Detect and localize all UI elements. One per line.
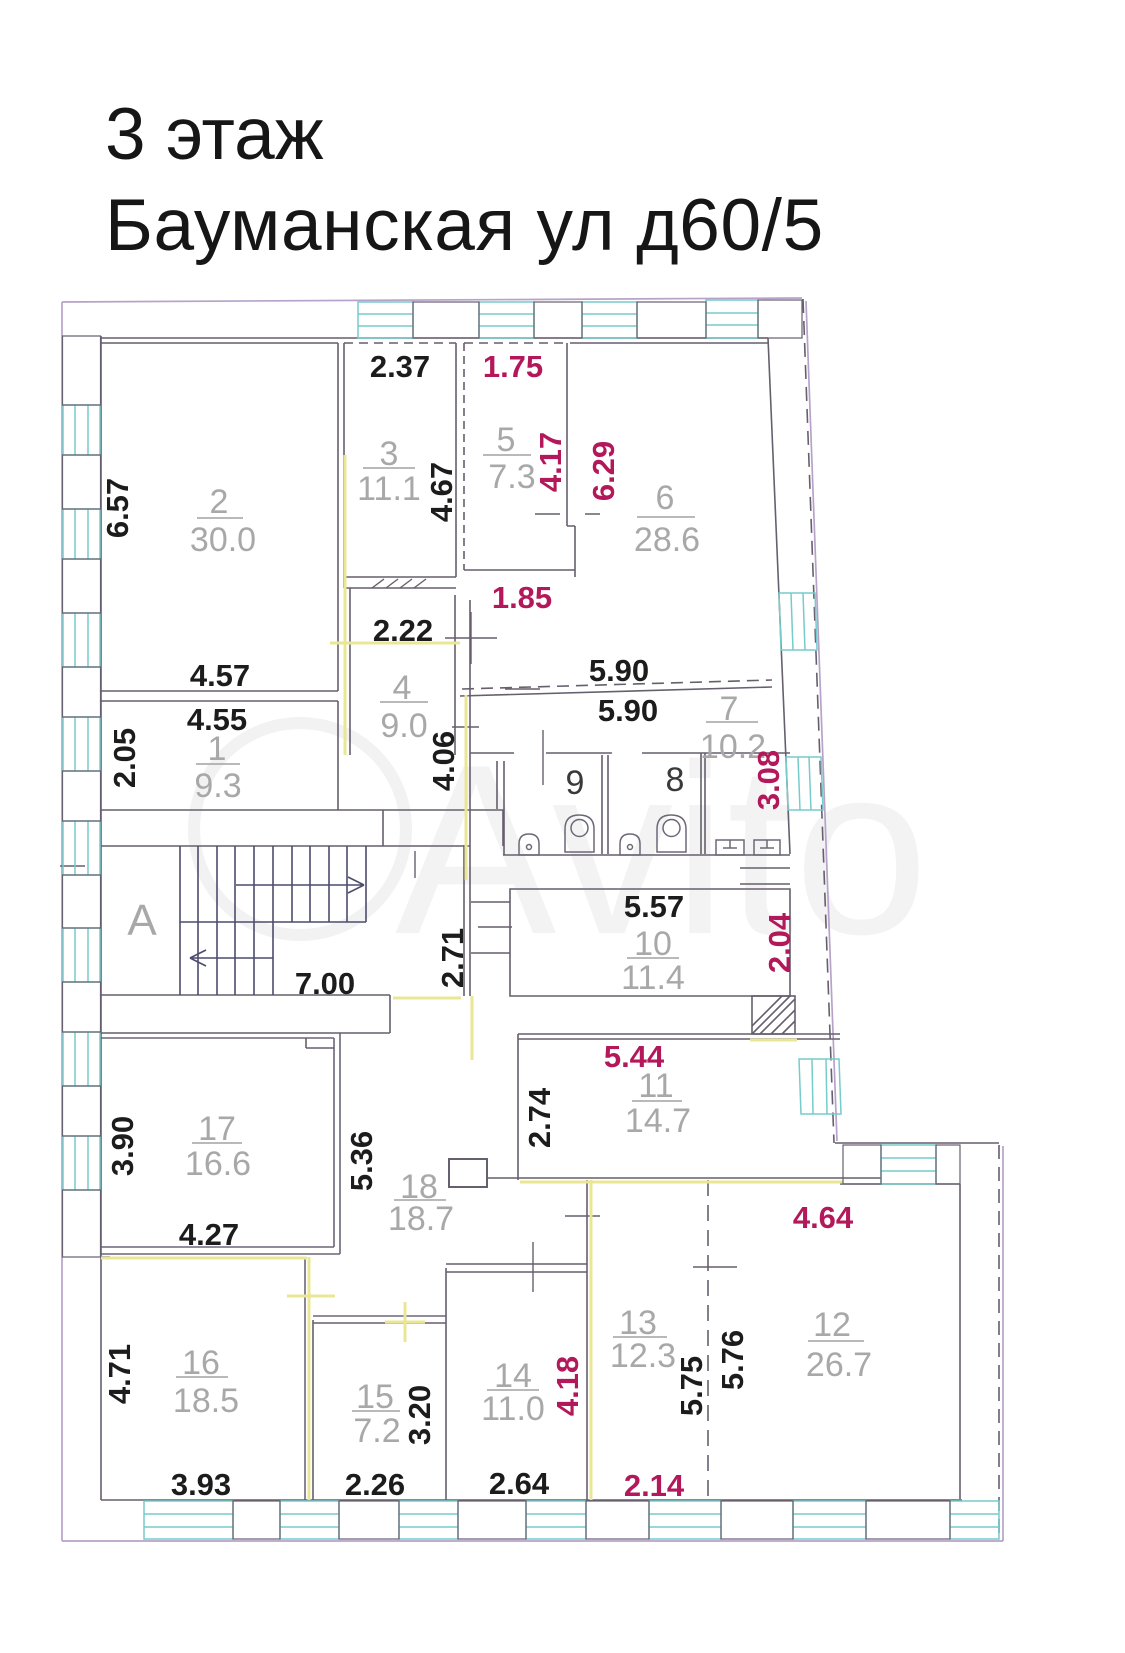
svg-text:7.00: 7.00 — [295, 966, 355, 1001]
svg-text:8: 8 — [666, 761, 685, 799]
svg-text:12: 12 — [813, 1306, 851, 1344]
svg-text:26.7: 26.7 — [806, 1346, 872, 1384]
svg-text:5.90: 5.90 — [598, 693, 658, 728]
svg-text:9.3: 9.3 — [194, 767, 241, 805]
svg-text:2: 2 — [210, 483, 229, 521]
svg-text:1.75: 1.75 — [483, 349, 543, 384]
svg-text:1.85: 1.85 — [492, 580, 552, 615]
svg-text:30.0: 30.0 — [190, 521, 256, 559]
svg-text:4.06: 4.06 — [426, 731, 461, 791]
svg-text:5: 5 — [497, 421, 516, 459]
svg-text:7.2: 7.2 — [353, 1412, 400, 1450]
svg-text:5.44: 5.44 — [604, 1039, 665, 1074]
svg-text:5.36: 5.36 — [344, 1131, 379, 1191]
svg-text:12.3: 12.3 — [610, 1337, 676, 1375]
svg-text:18.5: 18.5 — [173, 1382, 239, 1420]
svg-text:5.57: 5.57 — [624, 889, 684, 924]
svg-text:9: 9 — [566, 764, 585, 802]
svg-text:2.37: 2.37 — [370, 349, 430, 384]
svg-text:3.20: 3.20 — [402, 1385, 437, 1445]
svg-text:11.1: 11.1 — [357, 470, 421, 508]
svg-text:4.71: 4.71 — [102, 1344, 137, 1404]
svg-text:2.71: 2.71 — [435, 928, 470, 988]
svg-text:А: А — [127, 896, 157, 945]
svg-text:3.08: 3.08 — [751, 750, 786, 810]
svg-text:14.7: 14.7 — [625, 1102, 691, 1140]
svg-text:5.75: 5.75 — [674, 1356, 709, 1416]
svg-text:28.6: 28.6 — [634, 521, 700, 559]
svg-text:2.14: 2.14 — [624, 1468, 685, 1503]
svg-text:11.0: 11.0 — [481, 1390, 545, 1428]
svg-text:2.04: 2.04 — [762, 912, 797, 973]
svg-text:2.64: 2.64 — [489, 1466, 550, 1501]
svg-text:3.90: 3.90 — [105, 1116, 140, 1176]
svg-text:2.74: 2.74 — [522, 1087, 557, 1148]
svg-text:2.05: 2.05 — [107, 728, 142, 788]
svg-text:4.57: 4.57 — [190, 658, 250, 693]
svg-text:7.3: 7.3 — [488, 458, 535, 496]
svg-text:6.57: 6.57 — [100, 478, 135, 538]
svg-text:4.17: 4.17 — [533, 432, 568, 492]
svg-text:2.26: 2.26 — [345, 1467, 405, 1502]
svg-text:4.55: 4.55 — [187, 702, 247, 737]
svg-text:5.90: 5.90 — [589, 653, 649, 688]
svg-text:9.0: 9.0 — [380, 707, 427, 745]
svg-text:4.64: 4.64 — [793, 1200, 854, 1235]
svg-text:16.6: 16.6 — [185, 1145, 251, 1183]
svg-text:5.76: 5.76 — [715, 1330, 750, 1390]
svg-text:3.93: 3.93 — [171, 1467, 231, 1502]
svg-text:4.27: 4.27 — [179, 1217, 239, 1252]
svg-text:6.29: 6.29 — [586, 441, 621, 501]
svg-text:4.67: 4.67 — [424, 462, 459, 522]
svg-text:11.4: 11.4 — [621, 959, 685, 997]
svg-text:4.18: 4.18 — [550, 1356, 585, 1416]
svg-text:2.22: 2.22 — [373, 613, 433, 648]
svg-text:18.7: 18.7 — [388, 1200, 454, 1238]
svg-text:6: 6 — [656, 479, 675, 517]
